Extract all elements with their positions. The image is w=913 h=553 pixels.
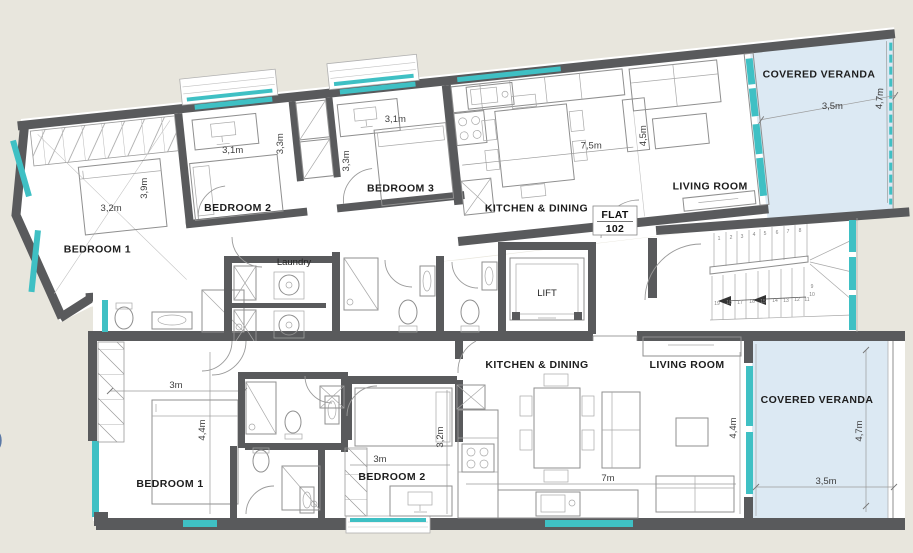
- svg-text:1: 1: [718, 236, 721, 242]
- svg-text:102: 102: [606, 223, 624, 235]
- dim-label: 7m: [601, 473, 614, 484]
- svg-text:FLAT: FLAT: [601, 209, 629, 221]
- dim-label: 4,7m: [854, 420, 865, 441]
- room-label: BEDROOM 2: [204, 202, 271, 214]
- wardrobe: [98, 342, 124, 442]
- room-label: LIVING ROOM: [673, 180, 748, 192]
- dim-label: 3m: [169, 380, 182, 391]
- svg-text:12: 12: [794, 297, 800, 303]
- svg-text:7: 7: [787, 229, 790, 235]
- laundry-label-102: Laundry: [277, 257, 312, 268]
- room-label: BEDROOM 3: [367, 183, 434, 195]
- dim-label: 3,5m: [822, 101, 843, 112]
- dim-label: 3,5m: [815, 476, 836, 487]
- flat-101: 3m 4,4m BEDROOM 1: [88, 331, 905, 533]
- svg-text:19: 19: [714, 301, 720, 307]
- svg-text:13: 13: [783, 298, 789, 304]
- louver-vent-bedroom2: [346, 516, 430, 533]
- flat-102-badge: FLAT 102: [593, 206, 637, 235]
- svg-text:14: 14: [772, 298, 778, 304]
- svg-text:4: 4: [753, 232, 756, 238]
- floor-plan-page: ): [0, 0, 913, 553]
- room-label: KITCHEN & DINING: [485, 203, 588, 215]
- svg-text:10: 10: [809, 292, 815, 298]
- room-label: KITCHEN & DINING: [485, 359, 588, 371]
- svg-text:6: 6: [776, 230, 779, 236]
- dim-label: 3,1m: [222, 145, 243, 156]
- room-label: BEDROOM 1: [64, 244, 131, 256]
- room-label: COVERED VERANDA: [761, 394, 874, 406]
- svg-text:2: 2: [730, 235, 733, 241]
- room-label: LIVING ROOM: [650, 359, 725, 371]
- dim-label: 3,1m: [385, 114, 406, 125]
- svg-text:16: 16: [749, 299, 755, 305]
- dim-label: 3,3m: [341, 150, 352, 171]
- room-label: BEDROOM 1: [136, 478, 203, 490]
- lift-label: LIFT: [537, 288, 557, 299]
- dim-label: 3,9m: [139, 178, 150, 199]
- dim-label: 4,7m: [874, 88, 886, 110]
- dim-label: 3m: [373, 454, 386, 465]
- dim-label: 4,4m: [728, 417, 739, 438]
- svg-text:15: 15: [760, 299, 766, 305]
- dim-label: 4,4m: [197, 419, 208, 440]
- svg-text:5: 5: [764, 231, 767, 237]
- floor-plan: ): [0, 0, 913, 553]
- room-label: BEDROOM 2: [358, 471, 425, 483]
- stray-edge-mark: ): [0, 428, 3, 451]
- svg-text:18: 18: [726, 300, 732, 306]
- svg-text:8: 8: [799, 228, 802, 234]
- room-label: COVERED VERANDA: [763, 68, 876, 80]
- dim-label: 3,2m: [435, 426, 446, 447]
- dim-label: 3,2m: [101, 203, 122, 214]
- dim-label: 7,5m: [581, 141, 602, 152]
- svg-text:9: 9: [811, 284, 814, 290]
- flat-101-veranda-floor: [752, 341, 888, 520]
- dim-label: 3,3m: [275, 133, 286, 154]
- svg-text:3: 3: [741, 234, 744, 240]
- dim-label: 4,5m: [638, 125, 649, 146]
- svg-text:17: 17: [737, 300, 743, 306]
- svg-text:11: 11: [804, 297, 809, 303]
